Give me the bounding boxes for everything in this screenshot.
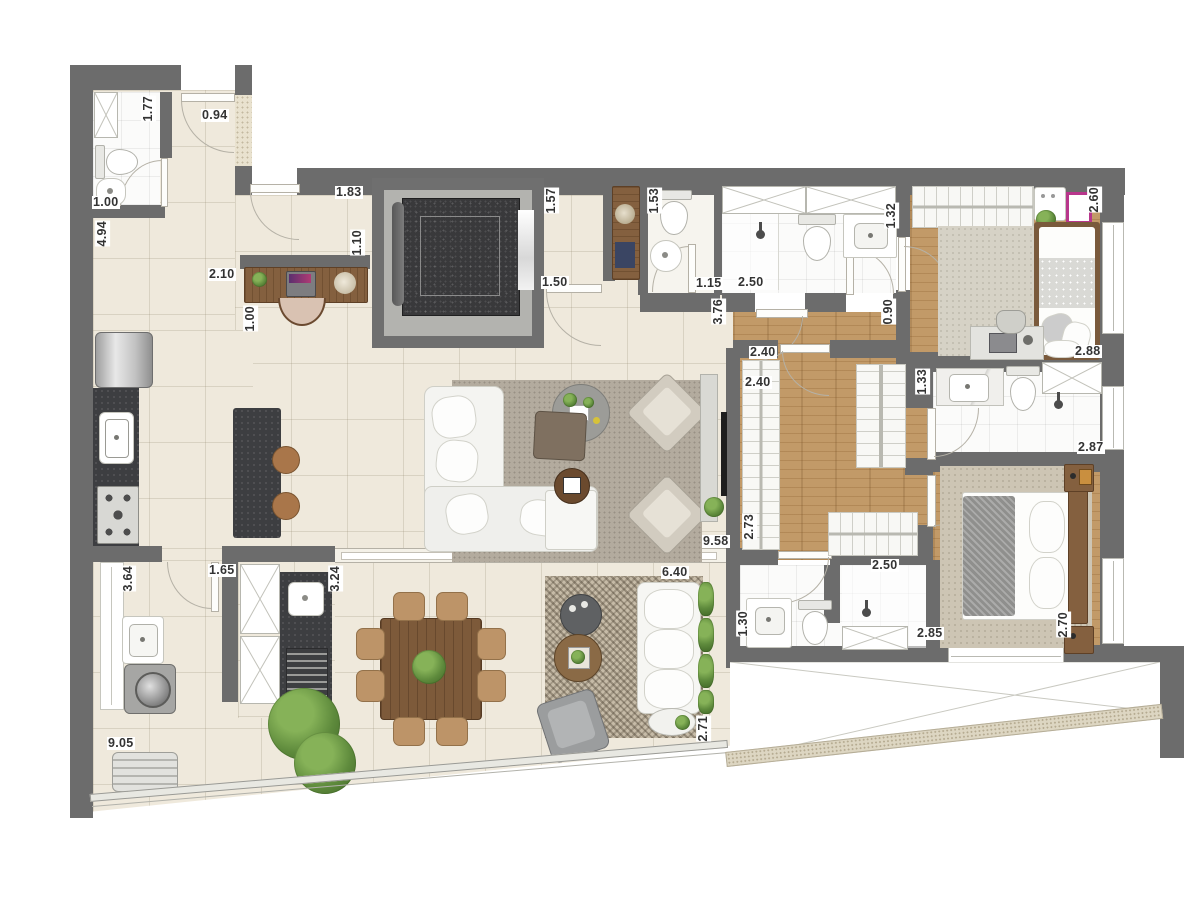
dimension-label: 2.71 bbox=[696, 716, 711, 742]
dimension-label: 1.00 bbox=[92, 196, 120, 209]
dimension-label: 1.77 bbox=[141, 96, 156, 122]
dimension-label: 2.88 bbox=[1074, 345, 1102, 358]
dimension-label: 1.10 bbox=[350, 230, 365, 256]
dimension-label: 1.15 bbox=[695, 277, 723, 290]
dimension-label: 2.70 bbox=[1056, 612, 1071, 638]
dimension-label: 1.83 bbox=[335, 186, 363, 199]
dimension-label: 3.76 bbox=[711, 299, 726, 325]
dimension-label: 2.60 bbox=[1087, 187, 1102, 213]
dimension-label: 0.90 bbox=[881, 299, 896, 325]
dimension-label: 2.40 bbox=[744, 376, 772, 389]
dimension-label: 2.85 bbox=[916, 627, 944, 640]
floor-plan: 1.770.941.004.941.831.102.101.001.571.50… bbox=[0, 0, 1200, 906]
dimension-label: 1.30 bbox=[736, 611, 751, 637]
dimension-label: 3.64 bbox=[121, 566, 136, 592]
dimension-label: 2.40 bbox=[749, 346, 777, 359]
dimension-label: 1.53 bbox=[647, 188, 662, 214]
dimension-label: 2.73 bbox=[742, 514, 757, 540]
dimension-label: 2.10 bbox=[208, 268, 236, 281]
dimension-label: 1.00 bbox=[243, 306, 258, 332]
dimension-label: 2.87 bbox=[1077, 441, 1105, 454]
dimension-label: 4.94 bbox=[95, 221, 110, 247]
dimension-label: 0.94 bbox=[201, 109, 229, 122]
dimension-label: 9.58 bbox=[702, 535, 730, 548]
dimension-label: 2.50 bbox=[871, 559, 899, 572]
dimension-label: 2.50 bbox=[737, 276, 765, 289]
dimension-label: 1.32 bbox=[884, 203, 899, 229]
dimension-label: 1.33 bbox=[915, 369, 930, 395]
dimension-labels-layer: 1.770.941.004.941.831.102.101.001.571.50… bbox=[0, 0, 1200, 906]
dimension-label: 9.05 bbox=[107, 737, 135, 750]
dimension-label: 1.65 bbox=[208, 564, 236, 577]
dimension-label: 6.40 bbox=[661, 566, 689, 579]
dimension-label: 1.57 bbox=[544, 188, 559, 214]
dimension-label: 1.50 bbox=[541, 276, 569, 289]
dimension-label: 3.24 bbox=[328, 566, 343, 592]
